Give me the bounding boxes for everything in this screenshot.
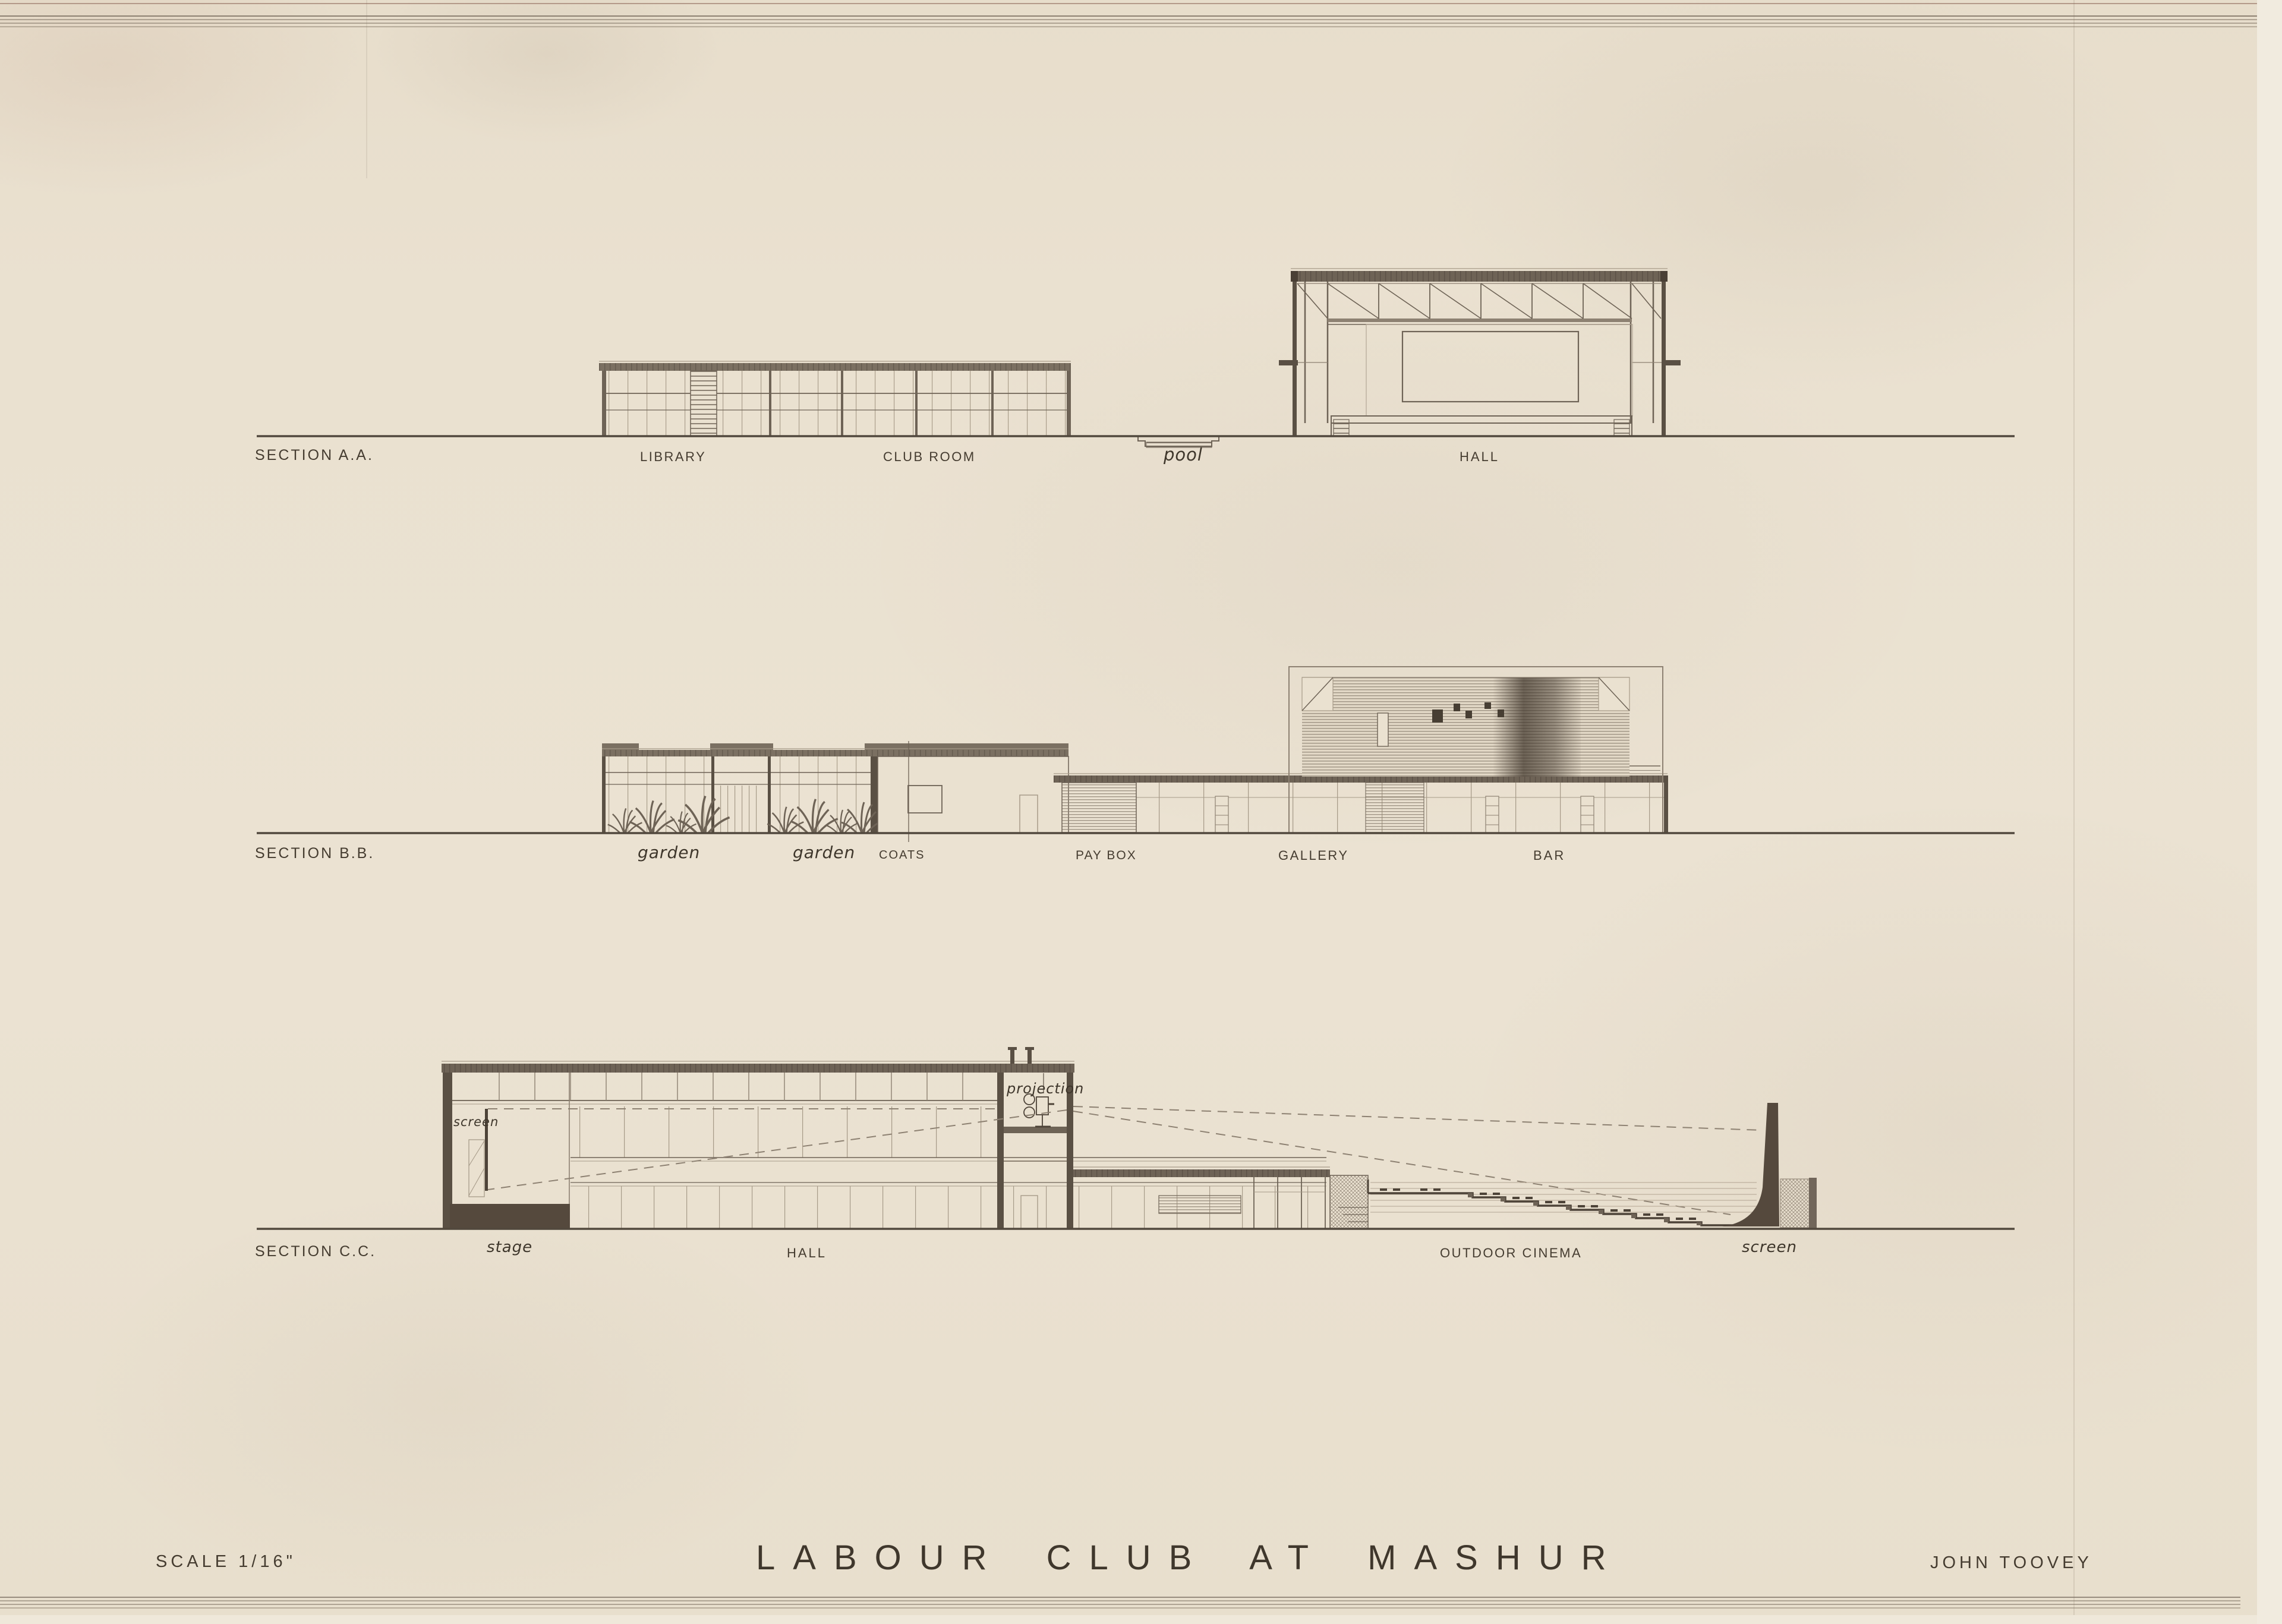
label-stage: stage	[487, 1238, 532, 1256]
label-bar: BAR	[1533, 848, 1565, 863]
top-ruled-band	[0, 4, 2257, 27]
stage-screen-opening	[1402, 332, 1578, 402]
slot-window	[1378, 713, 1388, 746]
label-pay-box: PAY BOX	[1076, 849, 1137, 863]
section-aa-title: SECTION A.A.	[255, 447, 374, 464]
label-outdoor-cinema: OUTDOOR CINEMA	[1440, 1245, 1582, 1261]
library-clubroom-elevation	[599, 361, 1071, 436]
bottom-ruled-band	[0, 1597, 2240, 1608]
annotation-screen: screen	[453, 1115, 499, 1129]
sections-linework	[0, 0, 2282, 1624]
paybox-gallery-range	[1054, 774, 1668, 833]
paybox-louvre-panel	[1062, 783, 1136, 833]
ground-lines	[257, 436, 2015, 1229]
architect-name: JOHN TOOVEY	[1930, 1553, 2092, 1573]
corner-brace-right	[1599, 677, 1629, 711]
section-cc-drawing	[442, 1047, 1817, 1229]
section-bb-drawing	[602, 667, 1668, 842]
door-detail	[1215, 796, 1228, 833]
outdoor-cinema-section	[1330, 1103, 1817, 1229]
sheet-title: LABOUR CLUB AT MASHUR	[756, 1538, 1624, 1578]
stage-plinth	[450, 1204, 570, 1229]
door-detail	[1581, 796, 1594, 833]
shaded-band	[1493, 677, 1581, 777]
label-outdoor-screen: screen	[1742, 1238, 1797, 1256]
label-pool: pool	[1164, 444, 1203, 465]
door-detail	[1486, 796, 1499, 833]
cinema-screen-pylon	[1722, 1103, 1779, 1226]
label-library: LIBRARY	[640, 449, 706, 465]
label-hall-aa: HALL	[1460, 449, 1499, 465]
drawing-sheet: { "palette": { "paper": "#eae1d0", "ink_…	[0, 0, 2282, 1624]
label-garden-2: garden	[793, 843, 855, 862]
label-hall-cc: HALL	[787, 1245, 827, 1261]
scale-note: SCALE 1/16"	[156, 1552, 296, 1572]
coats-wall	[878, 741, 1068, 842]
corner-brace-left	[1302, 677, 1333, 711]
louvre-grille	[1159, 1196, 1241, 1213]
cinema-sight-lines	[1370, 1182, 1757, 1212]
label-gallery: GALLERY	[1278, 848, 1349, 863]
stage-platform	[1331, 416, 1632, 436]
seating-steps	[1368, 1193, 1734, 1225]
ceiling-hangers	[499, 1073, 963, 1100]
annotation-projection: projection	[1007, 1080, 1084, 1097]
section-cc-title: SECTION C.C.	[255, 1243, 376, 1260]
label-garden-1: garden	[638, 843, 700, 862]
hall-cross-section	[1279, 269, 1681, 436]
label-coats: COATS	[879, 849, 925, 862]
roof-truss	[1297, 283, 1661, 324]
section-aa-drawing	[599, 269, 1681, 447]
label-club-room: CLUB ROOM	[883, 449, 976, 465]
section-bb-title: SECTION B.B.	[255, 845, 374, 862]
